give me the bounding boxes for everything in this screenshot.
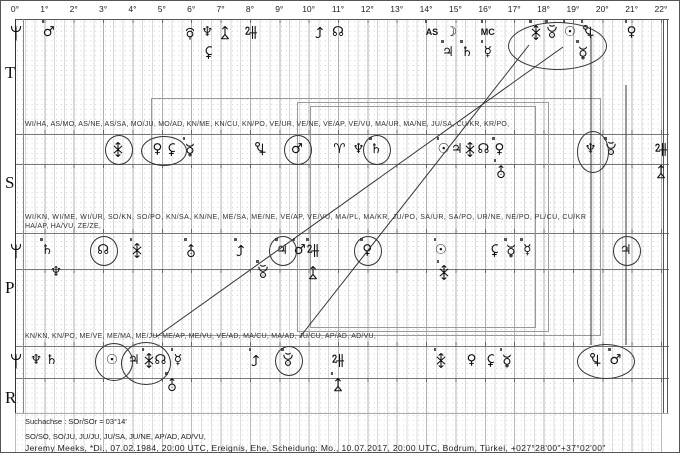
- emphasis-dot: [437, 137, 440, 140]
- emphasis-dot: [441, 40, 444, 43]
- glyph-mercury: ☿: [171, 352, 185, 368]
- emphasis-dot: [494, 159, 497, 162]
- highlight-ellipse: [508, 22, 607, 70]
- glyph-hades: [484, 352, 498, 368]
- search-axis-text: Suchachse : SOr/SOr = 03°14': [25, 417, 127, 426]
- degree-label-12: 12°: [361, 4, 374, 14]
- glyph-zeus: [306, 264, 320, 280]
- emphasis-dot: [249, 348, 252, 351]
- degree-label-10: 10°: [302, 4, 315, 14]
- degree-label-11: 11°: [332, 4, 344, 14]
- highlight-ellipse: [577, 344, 635, 379]
- glyph-cupido: [253, 141, 267, 157]
- degree-label-15: 15°: [449, 4, 462, 14]
- glyph-admetos: [504, 242, 518, 258]
- emphasis-dot: [234, 238, 237, 241]
- glyph-kronos: [234, 242, 248, 258]
- emphasis-dot: [40, 238, 43, 241]
- glyph-plutoA: [183, 24, 197, 40]
- glyph-hades: [202, 44, 216, 60]
- glyph-node: ☊: [331, 24, 345, 40]
- glyph-venus: ♀: [465, 352, 479, 368]
- glyph-node: ☊: [476, 141, 490, 157]
- dial-chart[interactable]: 0°1°2°3°4°5°6°7°8°9°10°11°12°13°14°15°16…: [0, 0, 680, 453]
- midpoint-list-row1: WI/HA, AS/MO, AS/NE, AS/SA, MO/JU, MO/AD…: [25, 121, 509, 128]
- glyph-neptune: ♆: [29, 352, 43, 368]
- glyph-sun: ☉: [437, 141, 451, 157]
- axis-list-text: SO/SO, SO/JU, JU/JU, JU/SA, JU/NE, AP/AD…: [25, 432, 206, 441]
- glyph-aries: ♈: [332, 141, 346, 157]
- glyph-uranusA: [184, 242, 198, 258]
- glyph-apollon: [306, 242, 320, 258]
- degree-label-0: 0°: [11, 4, 19, 14]
- right-border-line: [663, 19, 664, 413]
- highlight-circle: [105, 135, 133, 165]
- highlight-ellipse: [577, 131, 609, 173]
- highlight-circle: [613, 236, 641, 266]
- glyph-moon: ☽: [444, 24, 458, 40]
- emphasis-dot: [171, 348, 174, 351]
- highlight-circle: [90, 236, 118, 266]
- emphasis-dot: [184, 238, 187, 241]
- degree-label-1: 1°: [40, 4, 48, 14]
- glyph-saturn: ♄: [460, 44, 474, 60]
- glyph-hades: [488, 242, 502, 258]
- sector-label-p: P: [5, 278, 14, 298]
- glyph-admetos: [500, 352, 514, 368]
- emphasis-dot: [331, 372, 334, 375]
- glyph-wi: [9, 242, 23, 258]
- footer-rule: [15, 413, 669, 414]
- degree-label-19: 19°: [566, 4, 579, 14]
- glyph-neptune: ♆: [200, 24, 214, 40]
- glyph-apollon: [331, 352, 345, 368]
- emphasis-dot: [492, 137, 495, 140]
- emphasis-dot: [293, 238, 296, 241]
- highlight-circle: [363, 135, 391, 165]
- glyph-zeus: [331, 376, 345, 392]
- emphasis-dot: [460, 40, 463, 43]
- glyph-vulkX: [463, 141, 477, 157]
- highlight-circle: [275, 346, 303, 376]
- emphasis-dot: [183, 137, 186, 140]
- emphasis-dot: [434, 348, 437, 351]
- degree-label-4: 4°: [128, 4, 136, 14]
- emphasis-dot: [520, 238, 523, 241]
- midpoint-list-row2-line2: HA/AP, HA/VU, ZE/ZE,: [25, 223, 101, 230]
- glyph-as: AS: [425, 24, 439, 40]
- sector-label-r: R: [5, 388, 16, 408]
- emphasis-dot: [256, 260, 259, 263]
- degree-label-9: 9°: [275, 4, 283, 14]
- midpoint-list-row2-line1: WI/KN, WI/ME, WI/UR, SO/KN, SO/PO, KN/SA…: [25, 214, 586, 221]
- emphasis-dot: [306, 238, 309, 241]
- glyph-wi: [9, 24, 23, 40]
- degree-label-6: 6°: [187, 4, 195, 14]
- emphasis-dot: [130, 238, 133, 241]
- highlight-ellipse: [121, 342, 171, 385]
- glyph-saturn: ♄: [40, 242, 54, 258]
- sector-label-t: T: [5, 63, 15, 83]
- degree-label-20: 20°: [596, 4, 609, 14]
- glyph-uranusA: [165, 376, 179, 392]
- glyph-vulkX: [437, 264, 451, 280]
- highlight-ellipse: [141, 136, 187, 166]
- emphasis-dot: [434, 238, 437, 241]
- emphasis-dot: [500, 348, 503, 351]
- glyph-vulkX: [130, 242, 144, 258]
- emphasis-dot: [504, 238, 507, 241]
- degree-label-18: 18°: [537, 4, 550, 14]
- degree-label-16: 16°: [478, 4, 491, 14]
- glyph-jupiter: ♃: [441, 44, 455, 60]
- glyph-mercury: ☿: [481, 44, 495, 60]
- emphasis-dot: [625, 20, 628, 23]
- glyph-neptune: ♆: [49, 264, 63, 280]
- glyph-mars: ♂: [42, 24, 56, 40]
- emphasis-dot: [481, 20, 484, 23]
- degree-label-8: 8°: [246, 4, 254, 14]
- degree-label-3: 3°: [99, 4, 107, 14]
- degree-label-14: 14°: [420, 4, 433, 14]
- glyph-wi: [9, 352, 23, 368]
- glyph-poseidonC: [256, 264, 270, 280]
- glyph-zeus: [654, 163, 668, 179]
- degree-label-13: 13°: [390, 4, 403, 14]
- glyph-vulkX: [434, 352, 448, 368]
- degree-label-17: 17°: [508, 4, 521, 14]
- degree-label-22: 22°: [655, 4, 668, 14]
- degree-label-21: 21°: [625, 4, 638, 14]
- degree-label-5: 5°: [158, 4, 166, 14]
- glyph-zeus: [218, 24, 232, 40]
- emphasis-dot: [42, 20, 45, 23]
- highlight-circle: [284, 135, 312, 165]
- right-border-line2: [667, 19, 668, 413]
- emphasis-dot: [481, 40, 484, 43]
- emphasis-dot: [425, 20, 428, 23]
- glyph-kronos: [313, 24, 327, 40]
- glyph-apollon: [654, 141, 668, 157]
- glyph-mc: MC: [481, 24, 495, 40]
- emphasis-dot: [581, 20, 584, 23]
- emphasis-dot: [437, 260, 440, 263]
- glyph-venus: ♀: [625, 24, 639, 40]
- glyph-sun: ☉: [434, 242, 448, 258]
- midpoint-list-row3: KN/KN, KN/PO, ME/VE, ME/MA, ME/JU, ME/AP…: [25, 333, 376, 340]
- glyph-venus: ♀: [492, 141, 506, 157]
- glyph-uranusA: [494, 163, 508, 179]
- glyph-mercury: ☿: [520, 242, 534, 258]
- degree-label-2: 2°: [70, 4, 78, 14]
- sector-label-s: S: [5, 173, 14, 193]
- left-margin-line: [23, 19, 24, 413]
- glyph-kronos: [249, 352, 263, 368]
- glyph-apollon: [244, 24, 258, 40]
- emphasis-dot: [529, 20, 532, 23]
- degree-label-7: 7°: [216, 4, 224, 14]
- glyph-saturn: ♄: [45, 352, 59, 368]
- event-data-line: Jeremy Meeks, *Di., 07.02.1984, 20:00 UT…: [25, 443, 606, 453]
- glyph-jupiter: ♃: [450, 141, 464, 157]
